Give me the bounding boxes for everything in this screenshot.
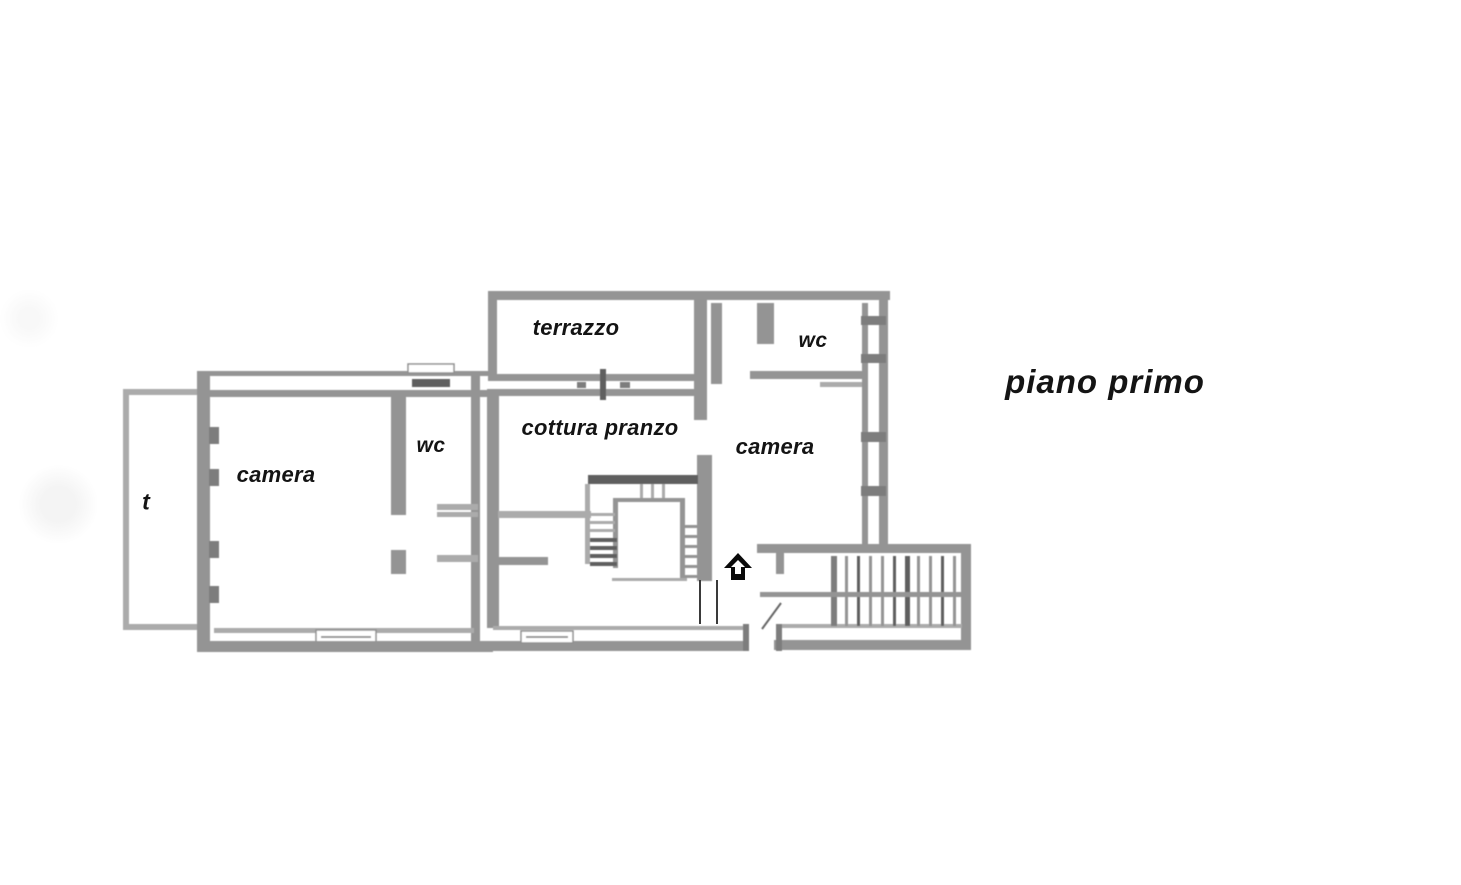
door-jamb <box>743 624 749 651</box>
floor-plan-drawing <box>0 0 1461 885</box>
room-label-t: t <box>142 489 150 516</box>
room-label-camera-left: camera <box>237 462 316 488</box>
room-label-wc-top: wc <box>798 329 827 353</box>
t-room-walls <box>123 389 207 630</box>
window-symbol <box>408 364 454 373</box>
door-jamb <box>776 624 782 651</box>
corridor-wall <box>697 455 712 581</box>
camera-right-walls <box>757 544 971 574</box>
room-label-camera-right: camera <box>736 434 815 460</box>
floor-plan: terrazzo wc cottura pranzo camera camera… <box>0 0 1461 885</box>
room-label-cottura-pranzo: cottura pranzo <box>522 415 679 441</box>
top-section-walls <box>488 291 890 420</box>
room-label-wc-left: wc <box>416 434 445 458</box>
plan-title: piano primo <box>1005 363 1205 401</box>
left-block-walls <box>197 364 493 652</box>
secondary-staircase <box>760 544 971 650</box>
room-label-terrazzo: terrazzo <box>533 315 620 341</box>
right-exterior-wall <box>861 296 888 548</box>
up-arrow-icon <box>724 553 752 580</box>
stair-guide-lines <box>699 580 718 624</box>
main-staircase <box>585 475 712 581</box>
